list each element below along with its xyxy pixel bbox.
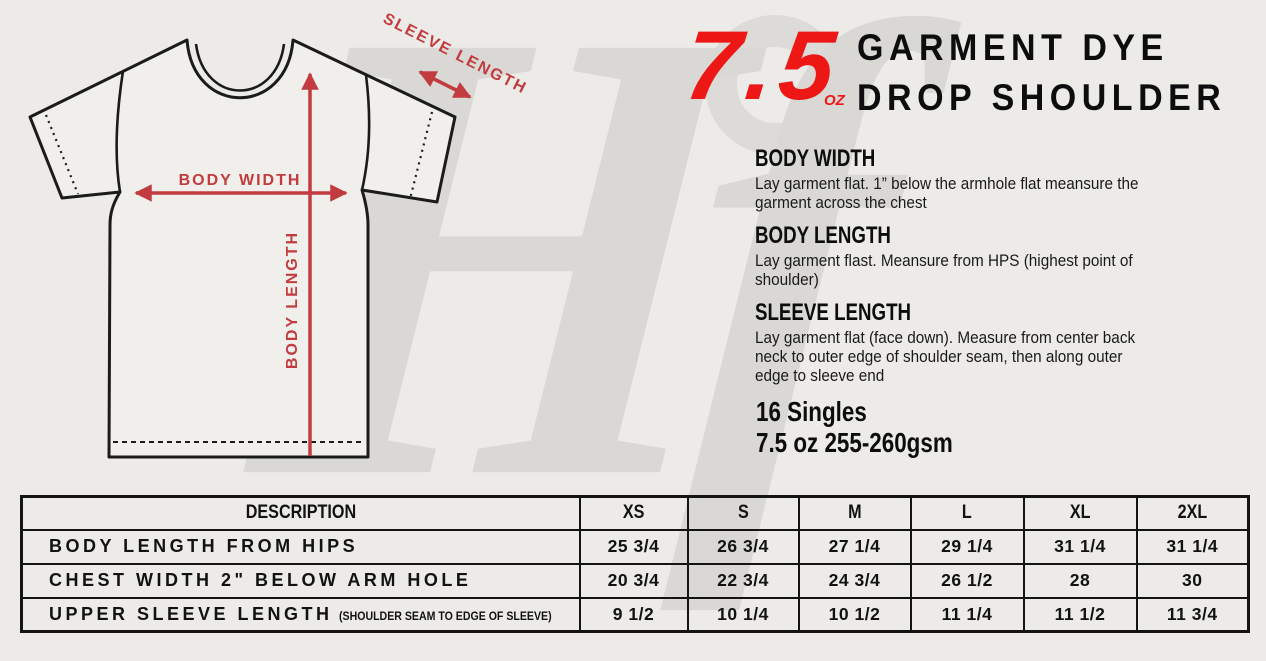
- col-header-xs: XS: [580, 497, 688, 530]
- section-heading: BODY WIDTH: [755, 148, 1087, 170]
- row-description-cell: BODY LENGTH FROM HIPS: [22, 530, 580, 564]
- table-row: BODY LENGTH FROM HIPS 25 3/4 26 3/4 27 1…: [22, 530, 1249, 564]
- col-header-s: S: [688, 497, 799, 530]
- size-value-cell: 24 3/4: [799, 564, 911, 598]
- fabric-weight-value: 7.5: [681, 16, 846, 114]
- size-value-cell: 26 3/4: [688, 530, 799, 564]
- size-chart-table: DESCRIPTION XS S M L XL 2XL BODY LENGTH …: [20, 495, 1250, 633]
- section-text-line: neck to outer edge of shoulder seam, the…: [755, 347, 1135, 366]
- size-value-cell: 10 1/2: [799, 598, 911, 632]
- section-body-width: BODY WIDTH Lay garment flat. 1” below th…: [755, 148, 1181, 212]
- body-width-label: BODY WIDTH: [179, 172, 302, 189]
- size-value-cell: 28: [1024, 564, 1137, 598]
- size-value-cell: 25 3/4: [580, 530, 688, 564]
- col-header-description: DESCRIPTION: [22, 497, 580, 530]
- size-value-cell: 26 1/2: [911, 564, 1024, 598]
- size-value-cell: 10 1/4: [688, 598, 799, 632]
- size-value-cell: 31 1/4: [1024, 530, 1137, 564]
- sleeve-length-label: SLEEVE LENGTH: [380, 10, 530, 97]
- collar-inner-line: [196, 44, 284, 91]
- fabric-spec-line-1: 16 Singles: [756, 396, 953, 427]
- section-text-line: shoulder): [755, 270, 1133, 289]
- col-header-m: M: [799, 497, 911, 530]
- section-body-length: BODY LENGTH Lay garment flast. Meansure …: [755, 225, 1175, 289]
- section-heading: SLEEVE LENGTH: [755, 302, 1084, 324]
- size-chart-page: Hf BODY WIDTH BODY LENGTH SLEEVE: [0, 0, 1266, 661]
- section-text-line: Lay garment flast. Meansure from HPS (hi…: [755, 251, 1133, 270]
- tshirt-measurement-diagram: BODY WIDTH BODY LENGTH SLEEVE LENGTH: [0, 0, 540, 480]
- table-row: UPPER SLEEVE LENGTH(SHOULDER SEAM TO EDG…: [22, 598, 1249, 632]
- size-value-cell: 11 1/4: [911, 598, 1024, 632]
- size-value-cell: 20 3/4: [580, 564, 688, 598]
- section-sleeve-length: SLEEVE LENGTH Lay garment flat (face dow…: [755, 302, 1177, 385]
- product-title-line-1: GARMENT DYE: [857, 30, 1169, 67]
- fabric-weight-unit: OZ: [824, 92, 845, 109]
- row-description-cell: UPPER SLEEVE LENGTH(SHOULDER SEAM TO EDG…: [22, 598, 580, 632]
- size-value-cell: 22 3/4: [688, 564, 799, 598]
- section-text-line: garment across the chest: [755, 193, 1139, 212]
- fabric-spec-line-2: 7.5 oz 255-260gsm: [756, 427, 953, 458]
- size-value-cell: 29 1/4: [911, 530, 1024, 564]
- size-value-cell: 9 1/2: [580, 598, 688, 632]
- body-length-label: BODY LENGTH: [284, 231, 301, 369]
- row-description-cell: CHEST WIDTH 2" BELOW ARM HOLE: [22, 564, 580, 598]
- row-description-note: (SHOULDER SEAM TO EDGE OF SLEEVE): [339, 611, 552, 623]
- sleeve-length-arrow: [420, 72, 470, 97]
- product-title-line-2: DROP SHOULDER: [857, 80, 1226, 117]
- section-text-line: edge to sleeve end: [755, 366, 1135, 385]
- size-value-cell: 11 3/4: [1137, 598, 1249, 632]
- section-text-line: Lay garment flat (face down). Measure fr…: [755, 328, 1135, 347]
- col-header-2xl: 2XL: [1137, 497, 1249, 530]
- size-value-cell: 11 1/2: [1024, 598, 1137, 632]
- size-value-cell: 31 1/4: [1137, 530, 1249, 564]
- table-row: CHEST WIDTH 2" BELOW ARM HOLE 20 3/4 22 …: [22, 564, 1249, 598]
- section-text-line: Lay garment flat. 1” below the armhole f…: [755, 174, 1139, 193]
- size-value-cell: 30: [1137, 564, 1249, 598]
- col-header-l: L: [911, 497, 1024, 530]
- tshirt-outline: [30, 40, 455, 457]
- fabric-spec: 16 Singles 7.5 oz 255-260gsm: [756, 396, 1002, 458]
- section-heading: BODY LENGTH: [755, 225, 1082, 247]
- col-header-xl: XL: [1024, 497, 1137, 530]
- size-value-cell: 27 1/4: [799, 530, 911, 564]
- table-header-row: DESCRIPTION XS S M L XL 2XL: [22, 497, 1249, 530]
